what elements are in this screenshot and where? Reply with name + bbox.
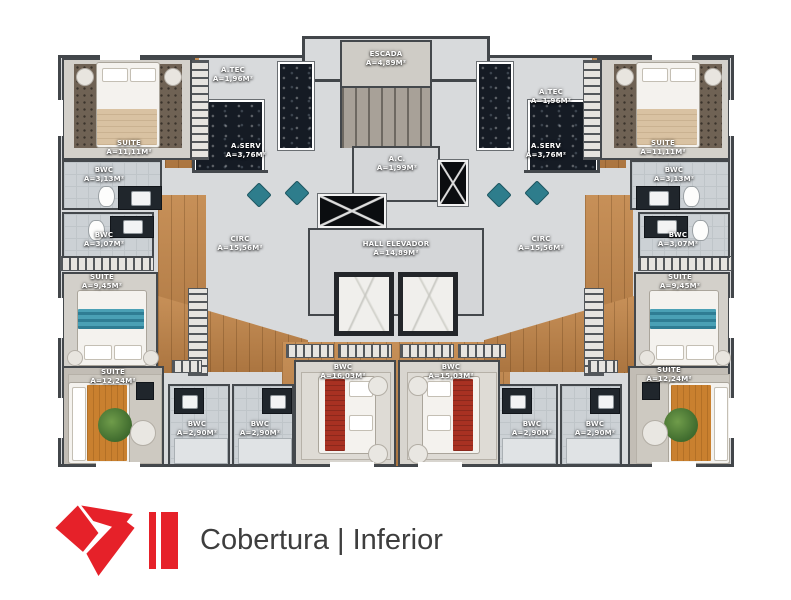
shower — [174, 438, 228, 464]
room-label-bwc-290-right-1: BWC A=2,90M² — [512, 420, 552, 438]
room-label-aserv-right: A.SERV A=3,76M² — [526, 142, 566, 160]
wall-segment — [524, 170, 600, 173]
bed — [649, 290, 719, 366]
room-label-bwc-290-right-2: BWC A=2,90M² — [575, 420, 615, 438]
window — [100, 55, 140, 60]
room-label-bwc-313-right: BWC A=3,13M² — [654, 166, 694, 184]
blanket — [650, 309, 716, 329]
room-label-hall-elevador: HALL ELEVADOR A=14,89M² — [363, 240, 430, 258]
window — [729, 398, 734, 438]
toilet — [98, 186, 115, 207]
pouf — [408, 444, 428, 464]
ac-unit-icon — [438, 160, 468, 206]
room-label-atec-right: A.TEC A=1,96M² — [531, 88, 571, 106]
blanket — [325, 379, 345, 451]
elevator-2 — [398, 272, 458, 336]
bed — [77, 290, 147, 366]
room-label-suite-mid-left: SUITE A=9,45M² — [82, 273, 122, 291]
sink — [510, 395, 526, 409]
pillow — [686, 345, 714, 360]
bed — [422, 376, 480, 454]
bathroom-counter — [174, 388, 204, 414]
room-label-bwc-307-right: BWC A=3,07M² — [658, 231, 698, 249]
pillow — [427, 381, 451, 397]
nightstand — [715, 350, 731, 366]
room-label-bedroom-center-right: BWC A=15,03M² — [428, 363, 473, 381]
nightstand — [67, 350, 83, 366]
marble-slab-left-b — [278, 62, 314, 150]
nightstand — [616, 68, 634, 86]
stair-steps — [342, 86, 430, 148]
room-label-bedroom-center-left: BWC A=16,03M² — [320, 363, 365, 381]
window — [729, 298, 734, 338]
side-table — [136, 382, 154, 400]
plant — [98, 408, 132, 442]
sink — [131, 191, 151, 206]
room-label-suite-mid-right: SUITE A=9,45M² — [660, 273, 700, 291]
louver-strip — [191, 60, 209, 160]
pouf — [368, 444, 388, 464]
brand-bar-thin — [149, 512, 156, 569]
nightstand — [76, 68, 94, 86]
sink — [649, 191, 669, 206]
room-label-aserv-left: A.SERV A=3,76M² — [226, 142, 266, 160]
elevator-1 — [334, 272, 394, 336]
bed — [96, 62, 160, 148]
bathroom-counter — [262, 388, 292, 414]
pillow — [102, 68, 128, 82]
louver-strip — [338, 344, 392, 358]
pillow — [656, 345, 684, 360]
blanket — [453, 379, 473, 451]
nightstand — [704, 68, 722, 86]
louver-strip — [286, 344, 334, 358]
room-label-suite-bottom-left: SUITE A=12,24M² — [90, 368, 135, 386]
brand-bar-thick — [161, 512, 178, 569]
louver-strip — [400, 344, 454, 358]
sink — [123, 220, 143, 234]
sink — [182, 395, 198, 409]
window — [58, 398, 63, 438]
pillow — [670, 68, 696, 82]
bathroom-counter — [590, 388, 620, 414]
nightstand — [143, 350, 159, 366]
nightstand — [639, 350, 655, 366]
room-label-circ-left: CIRC A=15,56M² — [217, 235, 262, 253]
shower — [238, 438, 292, 464]
window — [729, 100, 734, 136]
room-label-circ-right: CIRC A=15,56M² — [518, 235, 563, 253]
floorplan-page: ESCADA A=4,89M² A.TEC A=1,96M² A.TEC A=1… — [0, 0, 791, 600]
side-table — [642, 382, 660, 400]
sink — [270, 395, 286, 409]
window — [652, 462, 696, 467]
nightstand — [164, 68, 182, 86]
pouf — [642, 420, 668, 446]
window — [330, 462, 374, 467]
louver-strip — [458, 344, 506, 358]
room-label-bwc-290-left-2: BWC A=2,90M² — [240, 420, 280, 438]
bathroom-counter — [636, 186, 680, 210]
window — [58, 100, 63, 136]
room-label-suite-top-right: SUITE A=11,11M² — [640, 139, 685, 157]
pillow — [714, 387, 728, 461]
room-label-atec-left: A.TEC A=1,96M² — [213, 66, 253, 84]
ac-unit-icon — [318, 194, 386, 228]
page-title: Cobertura | Inferior — [200, 524, 443, 557]
pillow — [349, 415, 373, 431]
louver-strip — [583, 60, 601, 160]
window — [652, 55, 692, 60]
pillow — [84, 345, 112, 360]
pillow — [427, 415, 451, 431]
pillow — [642, 68, 668, 82]
shower — [566, 438, 620, 464]
room-label-bwc-313-left: BWC A=3,13M² — [84, 166, 124, 184]
room-label-bwc-307-left: BWC A=3,07M² — [84, 231, 124, 249]
louver-strip — [60, 256, 154, 271]
room-label-ac: A.C. A=1,99M² — [377, 155, 417, 173]
pillow — [130, 68, 156, 82]
room-label-suite-bottom-right: SUITE A=12,24M² — [646, 366, 691, 384]
blanket — [78, 309, 144, 329]
window — [58, 298, 63, 338]
brand-logo-icon — [52, 500, 138, 578]
bathroom-counter — [118, 186, 162, 210]
louver-strip — [588, 360, 618, 373]
marble-slab-right-b — [477, 62, 513, 150]
pillow — [72, 387, 86, 461]
bathroom-counter — [502, 388, 532, 414]
bed — [636, 62, 700, 148]
wall-segment — [192, 170, 268, 173]
room-label-escada: ESCADA A=4,89M² — [366, 50, 406, 68]
pillow — [114, 345, 142, 360]
sink — [598, 395, 614, 409]
window — [418, 462, 462, 467]
plant — [664, 408, 698, 442]
shower — [502, 438, 556, 464]
pouf — [368, 376, 388, 396]
toilet — [683, 186, 700, 207]
louver-strip — [638, 256, 732, 271]
window — [96, 462, 140, 467]
louver-strip — [172, 360, 202, 373]
pouf — [130, 420, 156, 446]
pouf — [408, 376, 428, 396]
room-label-bwc-290-left-1: BWC A=2,90M² — [177, 420, 217, 438]
room-label-suite-top-left: SUITE A=11,11M² — [106, 139, 151, 157]
